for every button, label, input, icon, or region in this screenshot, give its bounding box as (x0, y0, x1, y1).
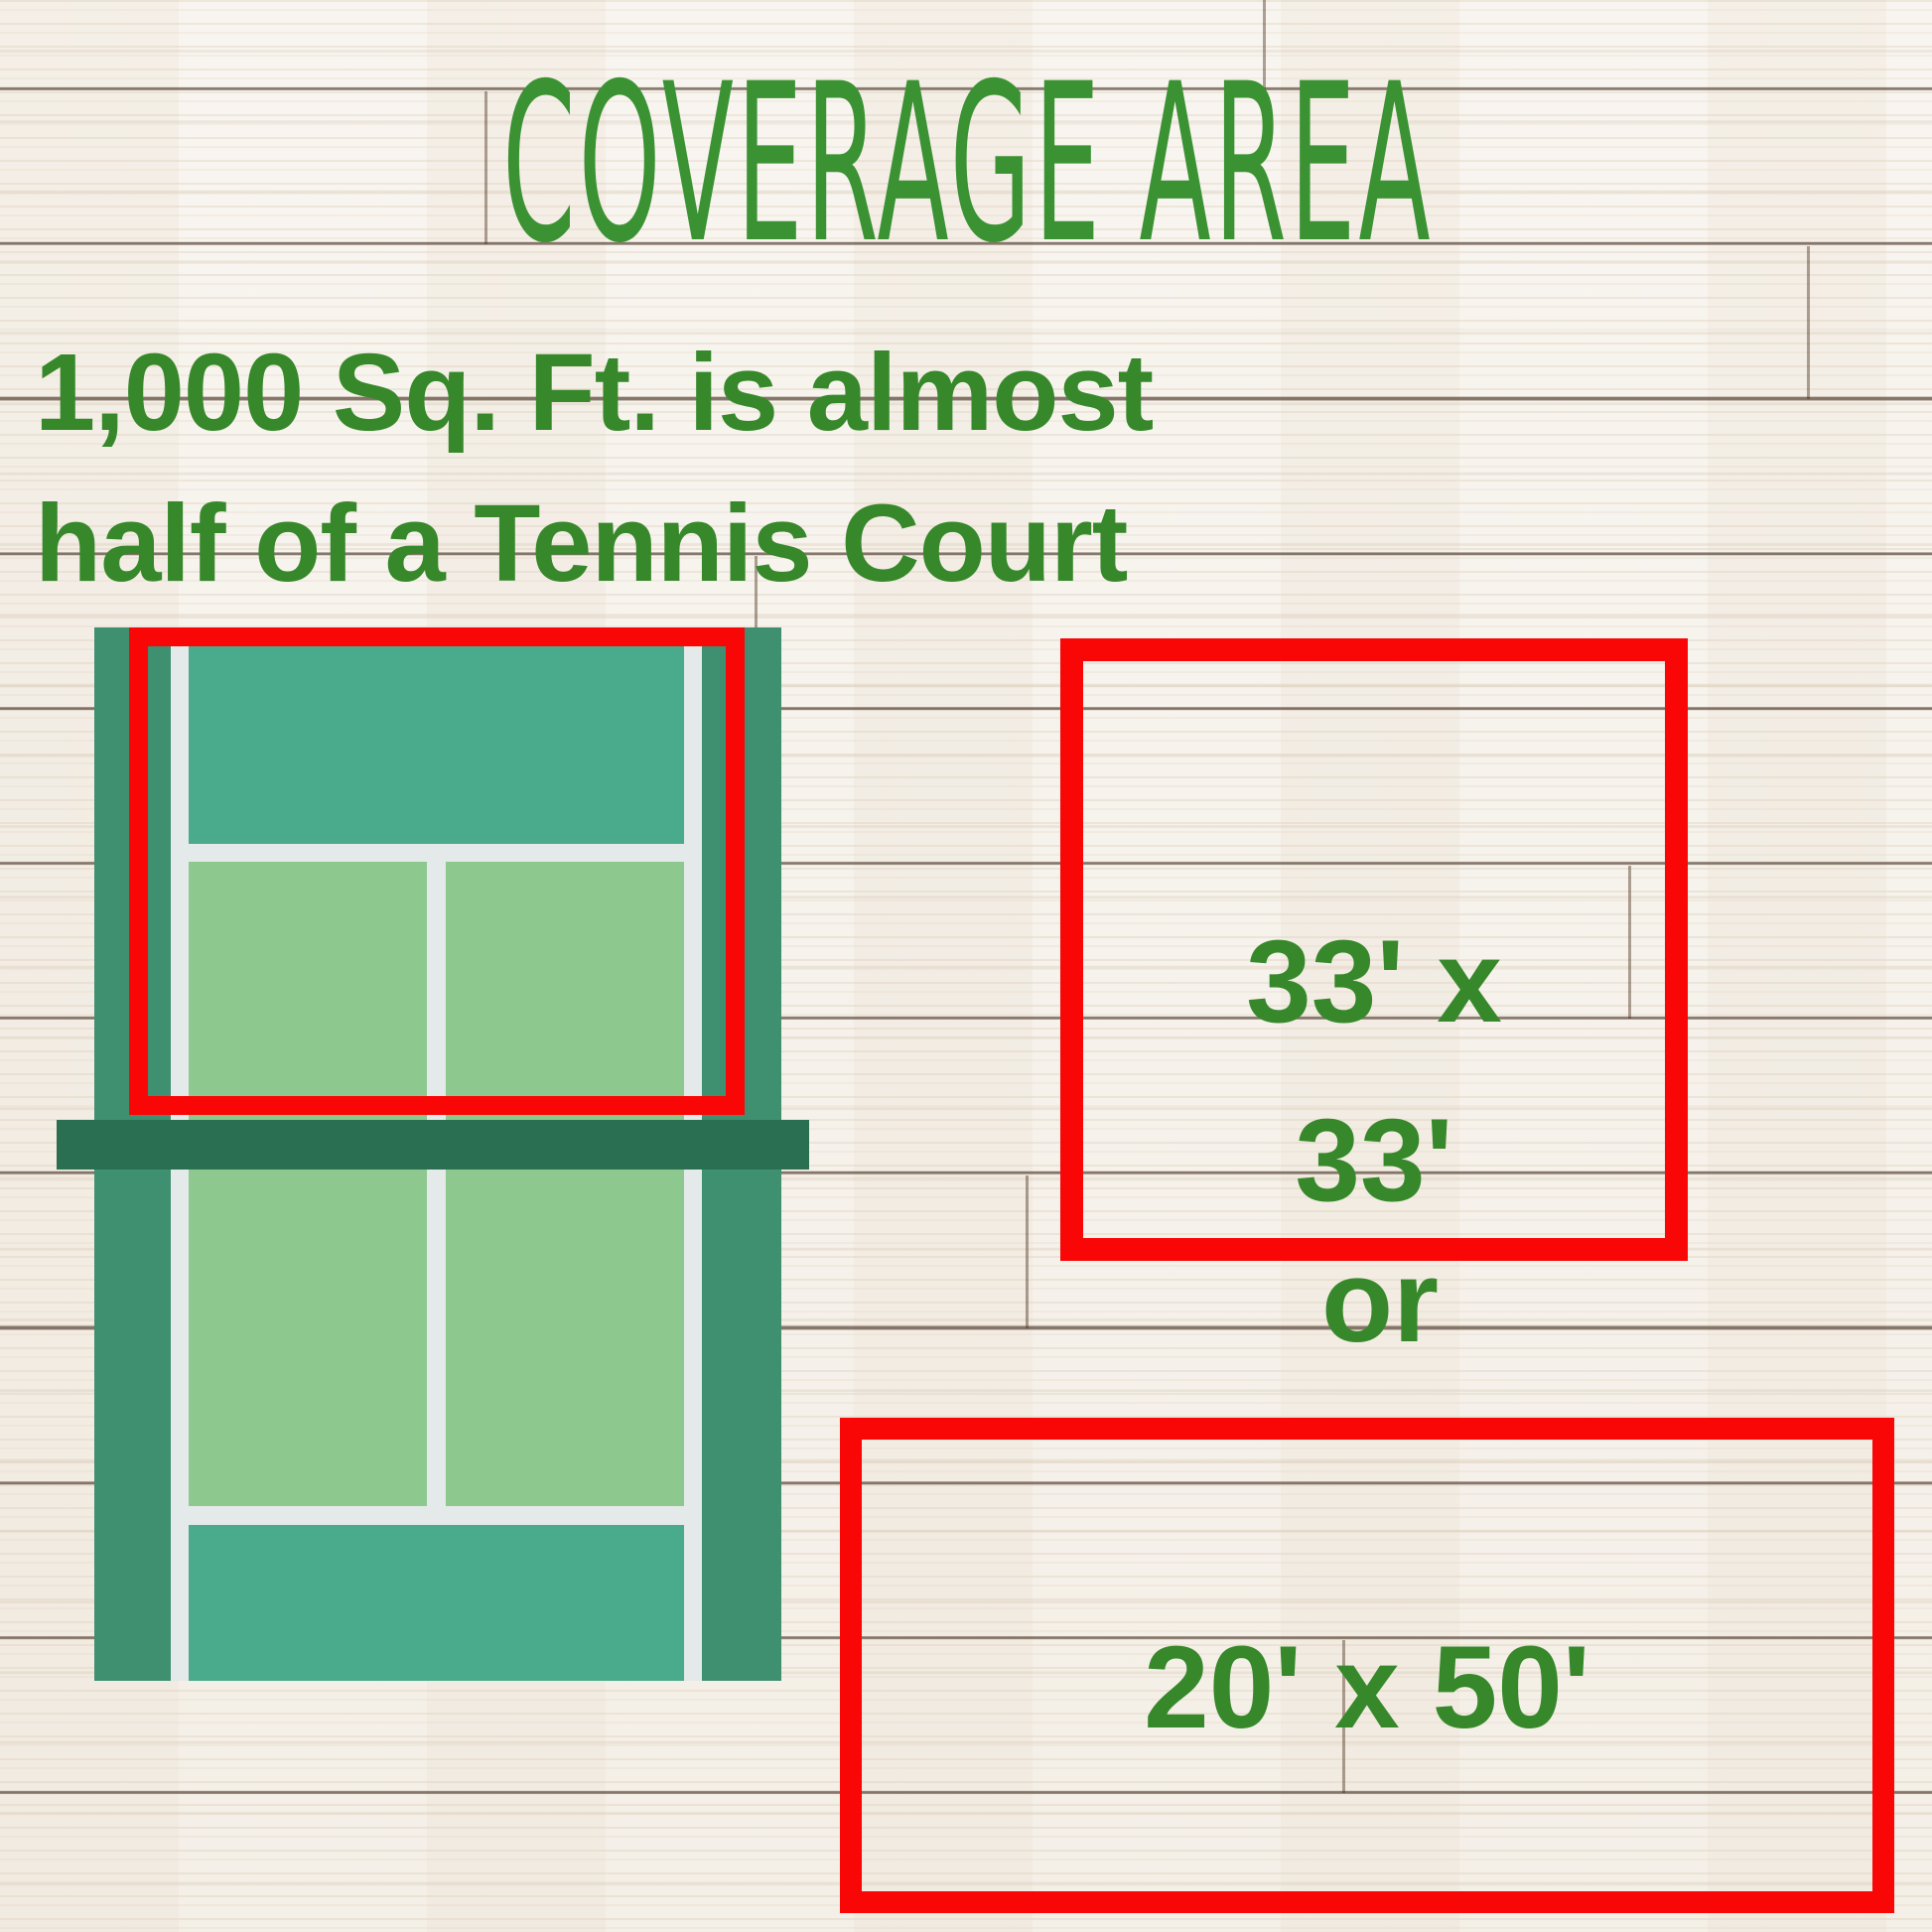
page-title: COVERAGE AREA (502, 55, 1430, 273)
wood-plank-joint (484, 91, 487, 244)
option-33x33-outline: 33' x 33' (1060, 638, 1688, 1261)
wood-plank-joint (1807, 246, 1810, 399)
subtitle-line-1: 1,000 Sq. Ft. is almost (35, 318, 1153, 469)
tennis-net (57, 1120, 809, 1170)
court-half-highlight-outline (129, 627, 745, 1115)
option-20x50-outline: 20' x 50' (840, 1418, 1894, 1913)
dimension-label-33x33: 33' x 33' (1083, 893, 1665, 1250)
dimension-33x33-line2: 33' (1083, 1071, 1665, 1250)
dimension-label-20x50: 20' x 50' (862, 1598, 1872, 1777)
coverage-area-infographic: COVERAGE AREA 1,000 Sq. Ft. is almost ha… (0, 0, 1932, 1932)
subtitle-line-2: half of a Tennis Court (35, 469, 1153, 620)
backcourt-bottom (189, 1525, 684, 1681)
dimension-33x33-line1: 33' x (1083, 893, 1665, 1071)
wood-plank-joint (1026, 1175, 1029, 1328)
or-separator-label: or (1301, 1243, 1459, 1360)
subtitle: 1,000 Sq. Ft. is almost half of a Tennis… (35, 318, 1153, 620)
